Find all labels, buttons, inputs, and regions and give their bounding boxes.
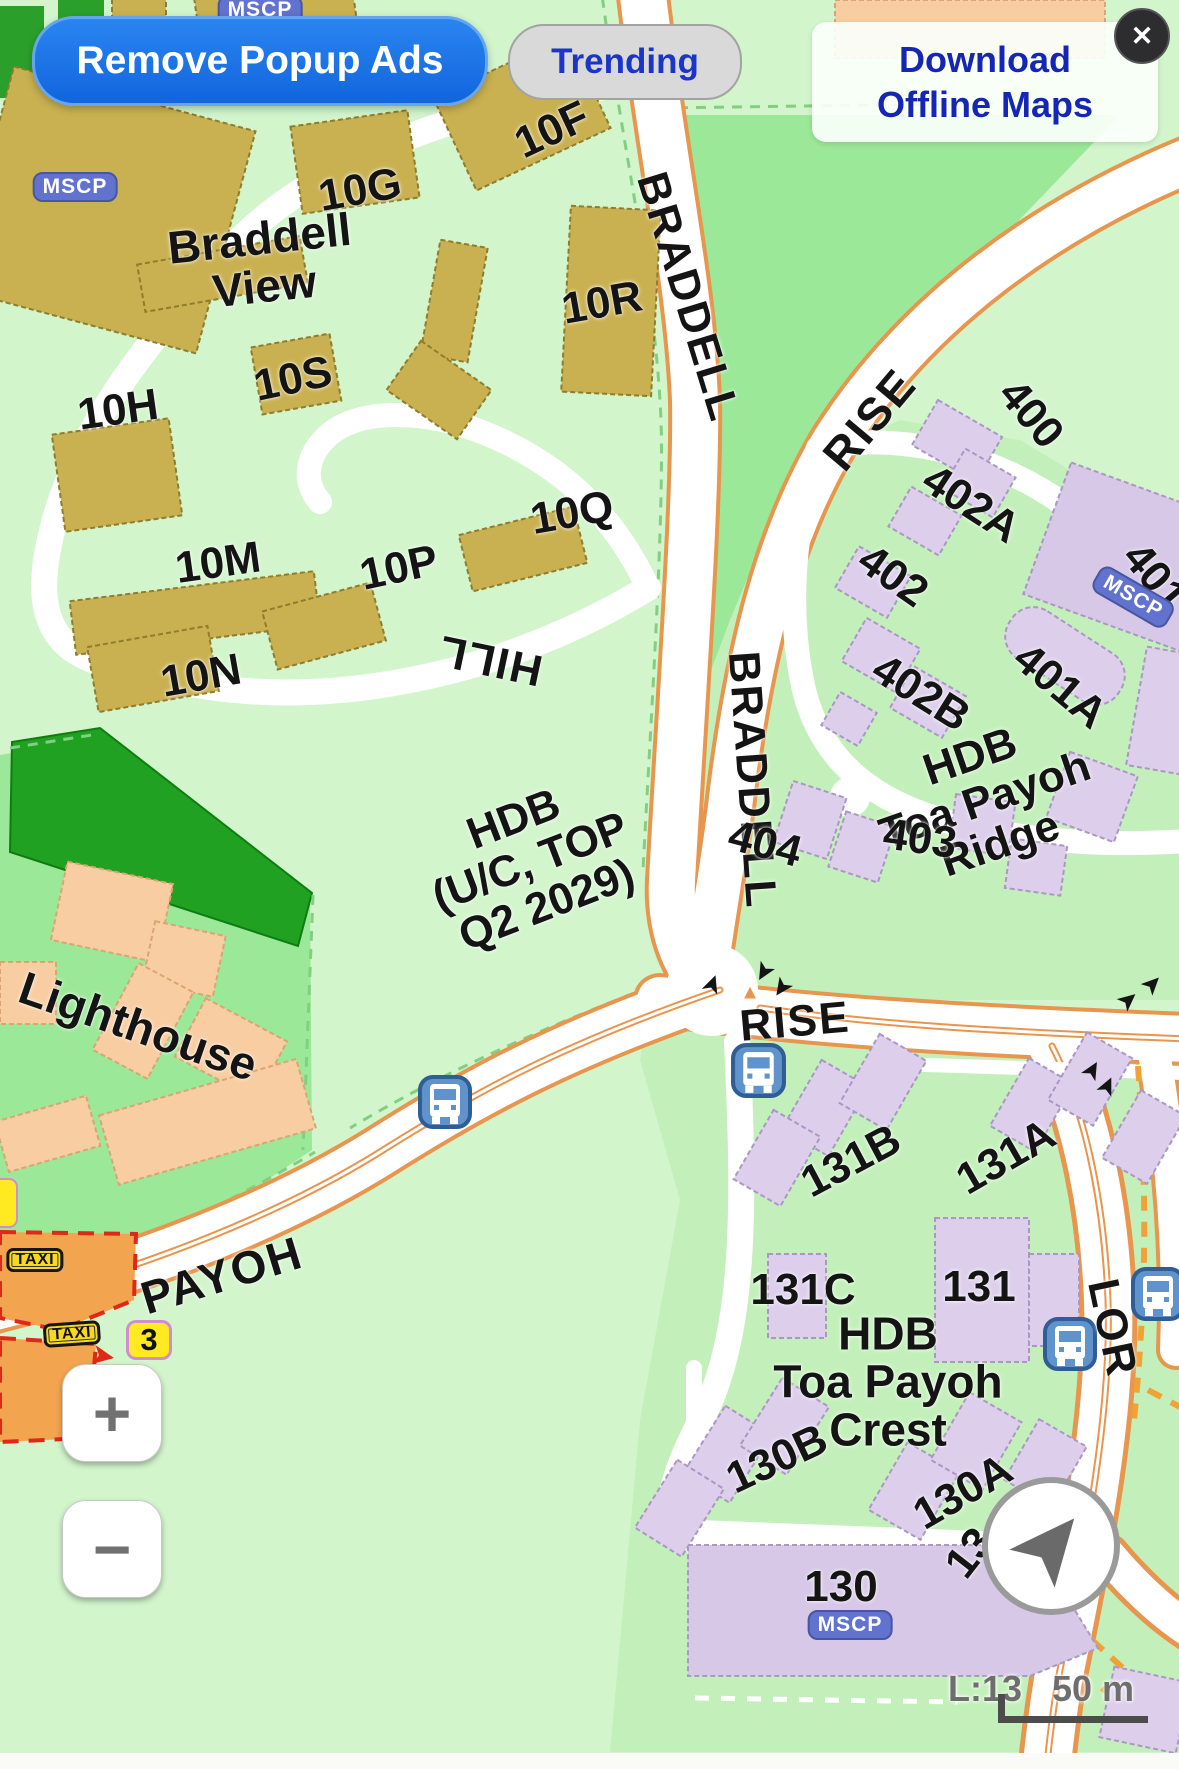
mscp-badge: MSCP bbox=[33, 172, 118, 202]
scale-distance-text: 50 m bbox=[1052, 1668, 1134, 1710]
bus-stop-icon[interactable] bbox=[1133, 1269, 1179, 1319]
bottom-bar bbox=[0, 1753, 1179, 1769]
zoom-in-button[interactable]: + bbox=[62, 1364, 162, 1462]
download-offline-maps-button[interactable]: Download Offline Maps bbox=[812, 22, 1158, 142]
remove-popup-ads-button[interactable]: Remove Popup Ads bbox=[32, 16, 488, 106]
route-badge-partial bbox=[0, 1178, 18, 1228]
block-label: 131 bbox=[942, 1264, 1015, 1310]
block-label: 131C bbox=[750, 1267, 855, 1313]
bus-stop-icon[interactable] bbox=[733, 1045, 784, 1096]
bus-stop-icon[interactable] bbox=[420, 1077, 470, 1127]
block-label: 403 bbox=[880, 811, 959, 867]
scale-bar-tick bbox=[998, 1694, 1005, 1718]
close-icon[interactable]: ✕ bbox=[1114, 8, 1170, 64]
junction-triangle-icon: ▲ bbox=[740, 982, 760, 1005]
mscp-badge: MSCP bbox=[808, 1610, 893, 1640]
block-label: 10H bbox=[75, 382, 161, 439]
trending-button[interactable]: Trending bbox=[508, 24, 742, 100]
area-label-braddell-view: Braddell View bbox=[165, 206, 358, 320]
zoom-out-button[interactable]: − bbox=[62, 1500, 162, 1598]
bus-route-badge: 3 bbox=[126, 1320, 172, 1360]
block-label: 130 bbox=[804, 1564, 877, 1610]
scale-bar bbox=[998, 1716, 1148, 1723]
compass-locate-button[interactable] bbox=[982, 1477, 1120, 1615]
taxi-stand-badge: TAXI bbox=[6, 1248, 63, 1272]
map-app-screen: BRADDELL RISE HILL BRADDELL RISE PAYOH L… bbox=[0, 0, 1179, 1769]
zoom-level-text: L:13 bbox=[948, 1668, 1022, 1710]
navigation-arrow-icon bbox=[1005, 1500, 1097, 1592]
